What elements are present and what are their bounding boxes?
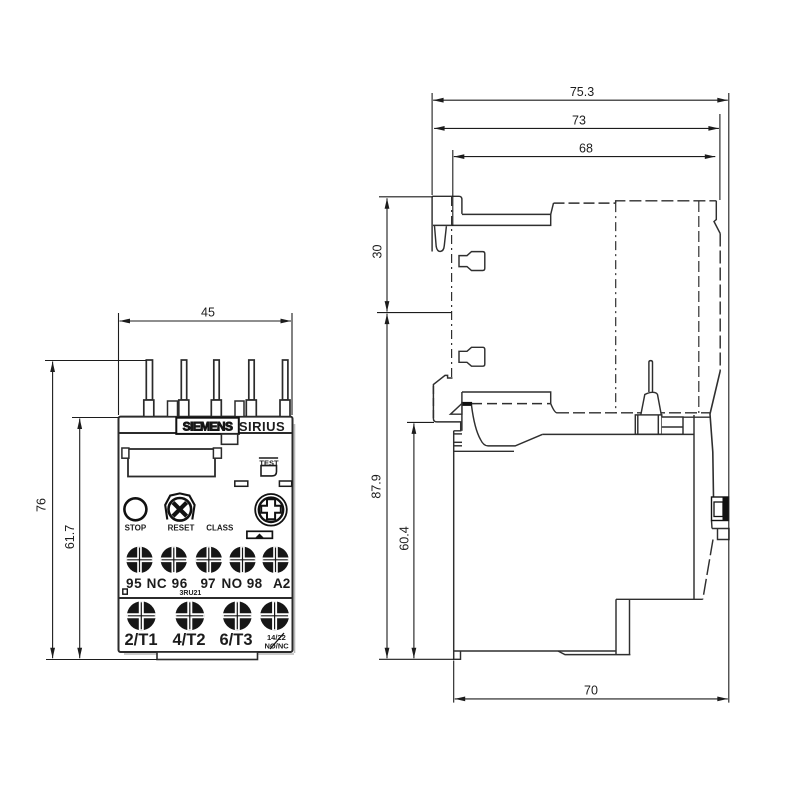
svg-text:87.9: 87.9 [370, 474, 384, 498]
svg-text:SIRIUS: SIRIUS [239, 419, 285, 434]
svg-text:60.4: 60.4 [398, 526, 412, 550]
svg-text:95 NC 96: 95 NC 96 [126, 576, 188, 591]
svg-text:SIEMENS: SIEMENS [183, 420, 233, 434]
svg-text:30: 30 [371, 245, 385, 259]
svg-text:A2: A2 [273, 576, 290, 591]
svg-text:2/T1: 2/T1 [125, 631, 158, 649]
svg-text:RESET: RESET [168, 524, 195, 533]
svg-text:70: 70 [584, 684, 598, 698]
svg-text:75.3: 75.3 [570, 85, 594, 99]
svg-text:6/T3: 6/T3 [220, 631, 253, 649]
svg-text:NO/NC: NO/NC [265, 642, 290, 651]
svg-text:68: 68 [579, 142, 593, 156]
svg-text:3RU21: 3RU21 [180, 590, 202, 597]
svg-text:45: 45 [201, 306, 215, 320]
svg-text:97: 97 [201, 576, 216, 591]
svg-text:61.7: 61.7 [63, 525, 77, 549]
svg-text:STOP: STOP [125, 524, 147, 533]
svg-text:76: 76 [35, 498, 49, 512]
svg-text:4/T2: 4/T2 [173, 631, 206, 649]
svg-text:CLASS: CLASS [206, 524, 234, 533]
svg-text:73: 73 [572, 113, 586, 127]
svg-text:NO 98: NO 98 [222, 576, 263, 591]
